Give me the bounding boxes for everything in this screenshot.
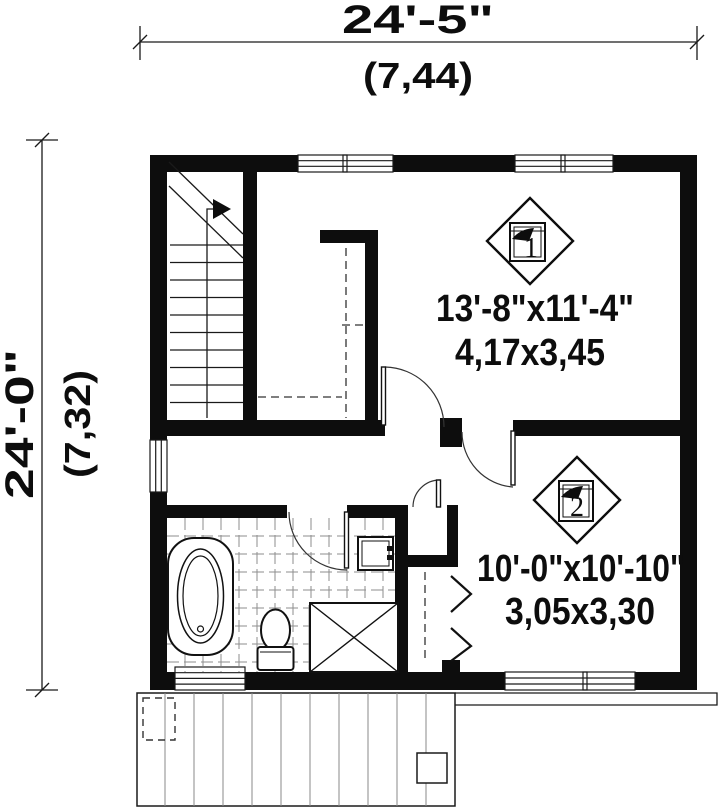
closet-wall (365, 230, 378, 430)
door-leaf (345, 512, 349, 568)
bedroom-divider-wall (513, 420, 697, 436)
bedroom1-closet (258, 248, 363, 418)
toilet (258, 610, 294, 671)
stair-break-line (169, 186, 243, 258)
bathroom-door (289, 512, 349, 570)
floor-plan-page: 24'-5" (7,44) 24'-0" (7,32) (0, 0, 720, 810)
bathtub (168, 538, 233, 655)
hall-wall (150, 420, 385, 436)
left-dimension-metric: (7,32) (57, 370, 98, 478)
door-leaf (382, 367, 386, 425)
bifold-door-icon (451, 576, 471, 612)
bedroom2-size-metric: 3,05x3,30 (505, 591, 655, 633)
stair-direction-arrow-icon (213, 199, 231, 219)
deck-post (417, 753, 447, 783)
wall-segment (393, 155, 515, 172)
sink-vanity (358, 537, 393, 570)
door-swing-arc (462, 432, 513, 487)
closet-stub (442, 660, 460, 672)
bedroom2-marker: 2 (534, 457, 620, 543)
door-leaf (511, 431, 515, 485)
door-leaf (437, 480, 441, 507)
wall-segment (150, 155, 167, 440)
floor-plan-drawing: 24'-5" (7,44) 24'-0" (7,32) (0, 0, 720, 810)
staircase (169, 162, 243, 418)
deck-steps (175, 667, 245, 690)
faucet-icon (387, 555, 393, 560)
door-swing-arc (289, 512, 347, 570)
tub-drain (198, 626, 204, 632)
door-swing-arc (385, 367, 444, 427)
wall-segment (245, 672, 505, 690)
deck-outline (137, 693, 455, 806)
room-number: 2 (570, 492, 584, 523)
top-dimension-metric: (7,44) (363, 55, 473, 96)
bedroom1-size-metric: 4,17x3,45 (455, 332, 605, 374)
linen-closet-door (413, 480, 441, 507)
bedroom1-marker: 1 (487, 198, 573, 284)
wall-segment (150, 492, 167, 690)
window-left (150, 440, 167, 492)
bedroom2-door (462, 431, 515, 487)
faucet-icon (387, 546, 393, 551)
bedroom2-closet (425, 572, 471, 661)
window-top-left (298, 155, 393, 172)
top-dimension: 24'-5" (7,44) (133, 0, 704, 96)
top-dimension-imperial: 24'-5" (342, 0, 494, 42)
stairwell-wall (243, 172, 257, 425)
wall-segment (150, 672, 175, 690)
room-labels: 13'-8"x11'-4" 4,17x3,45 10'-0"x10'-10" 3… (436, 288, 685, 633)
toilet-tank (258, 647, 294, 670)
bathroom-fixtures (168, 537, 398, 672)
deck (137, 693, 717, 806)
bedroom1-door (382, 367, 445, 427)
stair-direction-line (207, 209, 213, 418)
bathroom-wall (150, 505, 287, 518)
bedroom2-size-imperial: 10'-0"x10'-10" (477, 548, 685, 590)
left-dimension: 24'-0" (7,32) (0, 133, 98, 697)
wall-segment (635, 672, 697, 690)
window-top-right (515, 155, 613, 172)
left-dimension-imperial: 24'-0" (0, 349, 42, 499)
shower (309, 603, 398, 672)
bifold-door-icon (451, 628, 471, 661)
linen-closet-wall (397, 555, 457, 567)
window-bottom (505, 672, 635, 690)
wall-segment (150, 155, 298, 172)
stair-break-line (169, 162, 243, 234)
room-number: 1 (524, 233, 538, 264)
bedroom1-size-imperial: 13'-8"x11'-4" (436, 288, 634, 330)
lower-roof-edge (455, 693, 717, 705)
